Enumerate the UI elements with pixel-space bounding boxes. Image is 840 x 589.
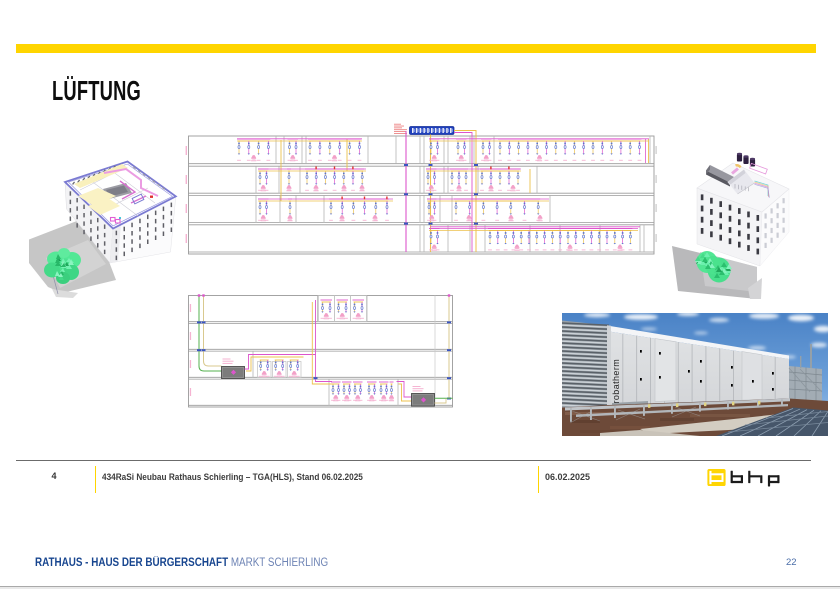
svg-text:robatherm: robatherm bbox=[611, 359, 621, 404]
